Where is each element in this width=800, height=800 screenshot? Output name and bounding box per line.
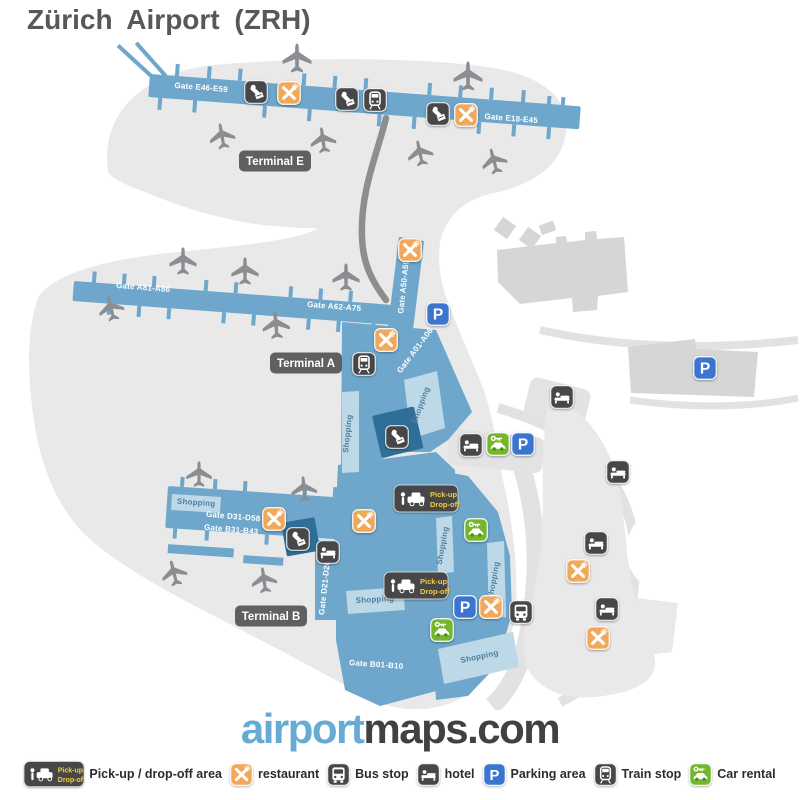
- pickup-dropoff-badge: Pick-upDrop-off: [24, 761, 84, 787]
- parking-icon: [427, 303, 450, 326]
- legend-label: Bus stop: [355, 767, 408, 781]
- hotel-icon: [417, 763, 440, 786]
- landside-annex: [636, 598, 678, 656]
- parking-icon: [454, 596, 477, 619]
- svg-text:Terminal B: Terminal B: [242, 611, 301, 623]
- legend-label: Train stop: [622, 767, 682, 781]
- train-icon: [364, 89, 387, 112]
- pickup-dropoff-badge: Pick-upDrop-off: [384, 572, 450, 599]
- parking-icon: [512, 433, 535, 456]
- cargo-building: [497, 231, 628, 312]
- restaurant-icon: [587, 627, 610, 650]
- terminal-badge: Terminal E: [239, 151, 311, 172]
- restaurant-icon: [375, 329, 398, 352]
- restaurant-icon: [353, 510, 376, 533]
- legend-label: Pick-up / drop-off area: [89, 767, 222, 781]
- passport-icon: [336, 88, 359, 111]
- svg-text:Pick-up: Pick-up: [430, 490, 458, 499]
- hotel-icon: [317, 541, 340, 564]
- svg-text:Terminal A: Terminal A: [277, 358, 335, 370]
- hotel-icon: [460, 434, 483, 457]
- road-right: [630, 398, 798, 406]
- restaurant-icon: [399, 239, 422, 262]
- legend-label: restaurant: [258, 767, 319, 781]
- passport-icon: [245, 81, 268, 104]
- parking-icon: [483, 763, 506, 786]
- legend-label: Parking area: [511, 767, 586, 781]
- restaurant-icon: [278, 82, 301, 105]
- svg-text:Drop-off: Drop-off: [420, 587, 450, 596]
- legend-item-restaurant: restaurant: [230, 763, 319, 786]
- passport-icon: [386, 426, 409, 449]
- restaurant-icon: [263, 508, 286, 531]
- restaurant-icon: [455, 104, 478, 127]
- svg-text:Drop-off: Drop-off: [430, 500, 460, 509]
- restaurant-icon: [480, 596, 503, 619]
- legend-item-hotel: hotel: [417, 763, 475, 786]
- hotel-icon: [551, 386, 574, 409]
- hotel-icon: [585, 532, 608, 555]
- svg-text:Drop-off: Drop-off: [58, 777, 84, 784]
- legend-item-bus: Bus stop: [327, 763, 408, 786]
- legend-label: hotel: [445, 767, 475, 781]
- logo-airport: airport: [241, 705, 364, 752]
- site-logo: airportmaps.com: [0, 704, 800, 754]
- car-rental-icon: [689, 763, 712, 786]
- car-rental-icon: [465, 519, 488, 542]
- train-icon: [353, 353, 376, 376]
- bus-icon: [327, 763, 350, 786]
- airport-map: P: [0, 0, 800, 710]
- legend-item-train: Train stop: [594, 763, 682, 786]
- restaurant-icon: [567, 560, 590, 583]
- svg-text:Pick-up: Pick-up: [420, 577, 448, 586]
- legend-label: Car rental: [717, 767, 775, 781]
- terminal-badge: Terminal A: [270, 353, 342, 374]
- car-rental-icon: [431, 619, 454, 642]
- landside-notch: [627, 512, 683, 588]
- passport-icon: [287, 528, 310, 551]
- legend-item-parking: Parking area: [483, 763, 586, 786]
- legend-item-car-rental: Car rental: [689, 763, 775, 786]
- car-rental-icon: [487, 433, 510, 456]
- legend: Pick-upDrop-offPick-up / drop-off areare…: [0, 761, 800, 787]
- legend-item-pickup: Pick-upDrop-offPick-up / drop-off area: [24, 761, 222, 787]
- bus-icon: [510, 601, 533, 624]
- hotel-icon: [607, 461, 630, 484]
- hotel-icon: [596, 598, 619, 621]
- parking-icon: [694, 357, 717, 380]
- passport-icon: [427, 103, 450, 126]
- logo-mapscom: maps.com: [363, 705, 559, 752]
- terminal-badge: Terminal B: [235, 606, 307, 627]
- pickup-dropoff-badge: Pick-upDrop-off: [394, 485, 460, 512]
- svg-text:Pick-up: Pick-up: [58, 768, 83, 775]
- svg-text:Terminal E: Terminal E: [246, 156, 304, 168]
- train-icon: [594, 763, 617, 786]
- restaurant-icon: [230, 763, 253, 786]
